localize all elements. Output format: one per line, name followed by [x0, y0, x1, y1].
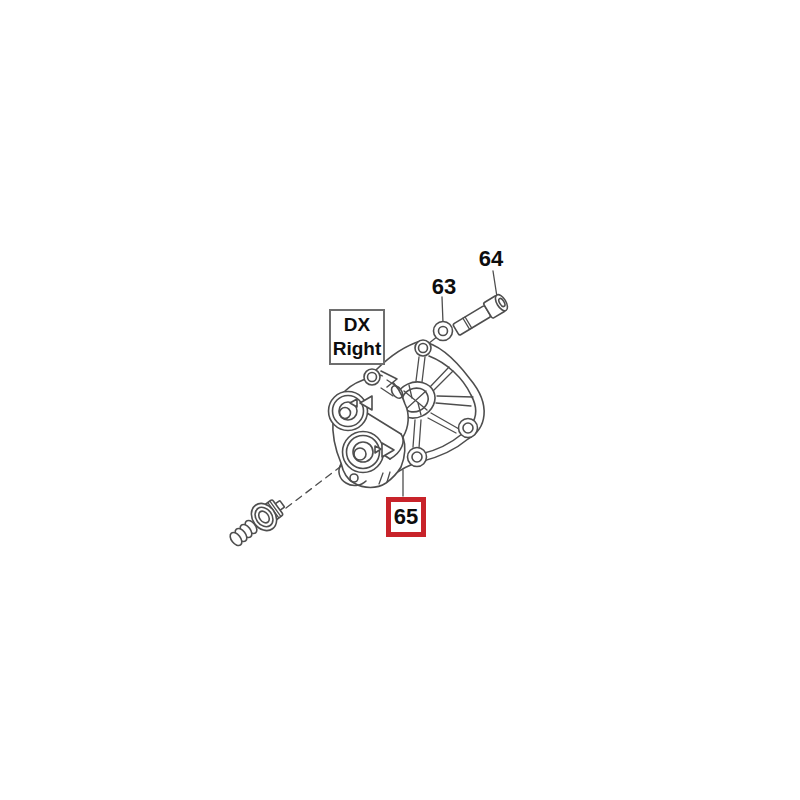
callout-65-number: 65	[394, 504, 418, 530]
callout-63: 63	[424, 276, 464, 298]
leader-line-64	[493, 271, 497, 297]
callout-64: 64	[471, 248, 511, 270]
callout-65-highlighted[interactable]: 65	[386, 497, 426, 537]
orientation-label-line2: Right	[333, 337, 382, 361]
leader-line-63	[442, 297, 443, 323]
bolt-drawing	[451, 293, 510, 338]
parts-diagram-page: DX Right 63 64 65	[0, 0, 800, 800]
exploded-view-drawing	[0, 0, 800, 800]
orientation-label-box: DX Right	[329, 309, 385, 365]
washer-drawing	[434, 322, 453, 341]
orientation-label-line1: DX	[344, 313, 370, 337]
